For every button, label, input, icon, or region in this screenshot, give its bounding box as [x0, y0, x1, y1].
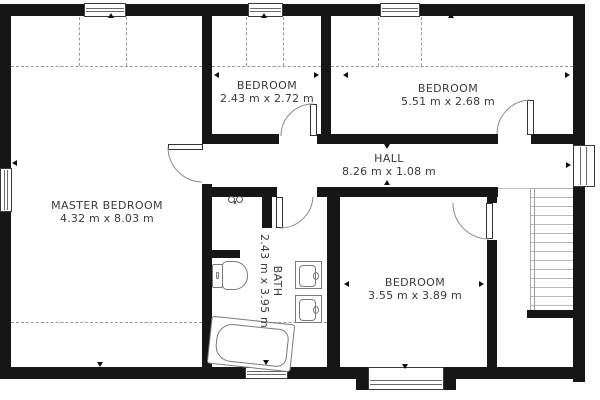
marker-icon — [343, 72, 348, 78]
dormer-line — [378, 17, 379, 66]
toilet-flush-icon — [216, 272, 219, 279]
wall-master-east-a — [202, 4, 212, 144]
wall-hall-north-3 — [531, 134, 573, 144]
wall-hall-north-2 — [317, 134, 498, 144]
marker-icon — [12, 160, 17, 166]
wall-bath-stub-west — [212, 250, 240, 258]
marker-icon — [314, 72, 319, 78]
wall-bay-jamb-right — [444, 367, 456, 390]
wall-hall-north-1 — [202, 134, 279, 144]
room-name: MASTER BEDROOM — [11, 199, 203, 212]
room-bedroom-right — [331, 16, 573, 134]
window-bedroom-right-top — [380, 3, 420, 17]
dormer-line — [421, 17, 422, 66]
marker-icon — [448, 13, 454, 18]
marker-icon — [565, 72, 570, 78]
marker-icon — [402, 364, 408, 369]
marker-icon — [261, 13, 267, 18]
sink-icon — [295, 295, 322, 323]
marker-icon — [384, 144, 390, 149]
marker-icon — [263, 360, 269, 365]
marker-icon — [97, 362, 103, 367]
window-master-top — [84, 3, 126, 17]
label-hall: HALL 8.26 m x 1.08 m — [329, 152, 449, 178]
wall-right — [573, 4, 585, 382]
room-name: HALL — [329, 152, 449, 165]
label-bath: BATH 2.43 m x 3.95 m — [258, 221, 284, 341]
ceiling-line — [331, 66, 573, 67]
door-bedroom-middle — [310, 104, 317, 136]
marker-icon — [384, 180, 390, 185]
marker-icon — [214, 72, 219, 78]
room-name: BATH — [271, 221, 284, 341]
label-master-bedroom: MASTER BEDROOM 4.32 m x 8.03 m — [11, 199, 203, 225]
wall-stair-stub — [527, 310, 577, 318]
dormer-line — [126, 17, 127, 66]
room-name: BEDROOM — [340, 276, 490, 289]
door-bedroom-bottom — [486, 203, 493, 239]
label-bedroom-middle: BEDROOM 2.43 m x 2.72 m — [207, 79, 327, 105]
wall-bedroom3-east-b — [487, 240, 497, 367]
window-bay-bottom — [368, 367, 444, 390]
wall-bath-east — [327, 187, 340, 367]
wall-hall-south-2 — [317, 187, 498, 197]
dormer-line — [283, 17, 284, 66]
dormer-line — [79, 17, 80, 66]
room-bedroom-middle — [212, 16, 321, 134]
dormer-line — [246, 17, 247, 66]
floor-plan: MASTER BEDROOM 4.32 m x 8.03 m BEDROOM 2… — [0, 0, 600, 400]
label-bedroom-right: BEDROOM 5.51 m x 2.68 m — [348, 82, 548, 108]
stairs — [530, 188, 577, 312]
room-dimensions: 5.51 m x 2.68 m — [348, 95, 548, 108]
room-name: BEDROOM — [348, 82, 548, 95]
stair-railing — [534, 188, 535, 312]
toilet-bowl-icon — [222, 261, 248, 290]
room-dimensions: 8.26 m x 1.08 m — [329, 165, 449, 178]
sink-icon — [295, 261, 322, 289]
label-bedroom-bottom: BEDROOM 3.55 m x 3.89 m — [340, 276, 490, 302]
ceiling-line — [11, 66, 202, 67]
door-master-bedroom — [168, 144, 203, 150]
room-dimensions: 2.43 m x 3.95 m — [258, 221, 271, 341]
room-name: BEDROOM — [207, 79, 327, 92]
marker-icon — [566, 162, 571, 168]
wall-bay-jamb-left — [356, 367, 368, 390]
marker-icon — [108, 13, 114, 18]
wall-light-icon — [227, 195, 244, 204]
room-dimensions: 4.32 m x 8.03 m — [11, 212, 203, 225]
room-dimensions: 2.43 m x 2.72 m — [207, 92, 327, 105]
room-dimensions: 3.55 m x 3.89 m — [340, 289, 490, 302]
wall-bedroom-divider — [321, 4, 331, 144]
room-master-bedroom — [11, 16, 202, 367]
ceiling-line — [11, 322, 202, 323]
window-hall-right — [573, 145, 595, 187]
wall-bottom — [0, 367, 585, 379]
wall-bedroom3-east-a — [487, 187, 497, 203]
ceiling-line — [212, 66, 321, 67]
